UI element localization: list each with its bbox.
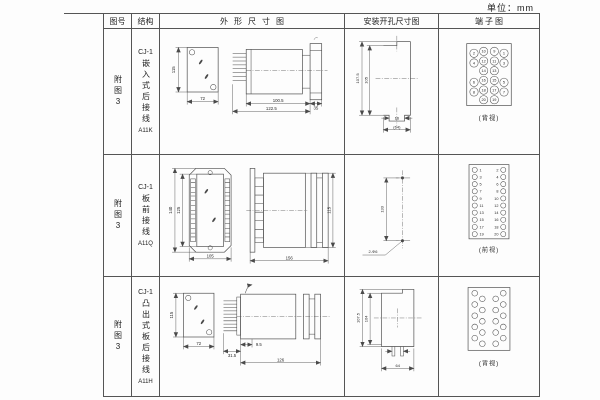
type-code: A11K — [138, 128, 152, 134]
terminal-number: 14 — [482, 68, 487, 73]
dim-side-d1: 31.5 — [227, 352, 236, 357]
side-view: 31.5 9.5 126 — [223, 284, 331, 365]
view-label: (背视) — [479, 359, 499, 367]
dim-front-width: 72 — [200, 96, 205, 101]
structure-label: 嵌入式后接线 — [142, 59, 150, 125]
terminal-diagram-a11h: (背视) — [439, 278, 539, 396]
screw-slot-icon — [204, 188, 209, 193]
row3-structure: CJ-1 凸出式板后接线 A11H — [132, 277, 160, 396]
terminal-number: 11 — [479, 203, 483, 207]
front-view: 140 125 105 — [168, 168, 231, 261]
dim-front-height: 115 — [169, 311, 174, 318]
dim-h-inner: 125 — [176, 206, 181, 214]
bottom-slots — [392, 346, 403, 356]
dim-side-d2: 9.5 — [255, 342, 262, 347]
terminal-number: 19 — [479, 232, 483, 236]
terminal-number: 18 — [494, 225, 498, 229]
terminal-number: 5 — [503, 79, 505, 84]
header-outline: 外形尺寸图 — [160, 14, 345, 29]
dim-v-inner: 104 — [363, 314, 368, 321]
terminal-number: 4 — [496, 175, 498, 179]
row2-outline-cell: 140 125 105 156 115 — [160, 155, 345, 277]
terminal-number: 11 — [492, 58, 496, 63]
row1-structure: CJ-1 嵌入式后接线 A11K — [132, 29, 160, 155]
row2-fig-no: 附图3 — [104, 155, 132, 277]
model-label: CJ-1 — [138, 184, 153, 191]
terminal-number: 12 — [482, 58, 486, 63]
terminal-diagram-a11q: 1 3 5 7 9 11 13 15 17 19 2 4 6 8 10 12 1… — [439, 157, 539, 275]
row3-terminal-cell: (背视) — [439, 277, 539, 396]
row3-fig-no: 附图3 — [104, 277, 132, 396]
row2-terminal-cell: 1 3 5 7 9 11 13 15 17 19 2 4 6 8 10 12 1… — [439, 155, 539, 277]
terminal-number: 8 — [473, 89, 475, 94]
dim-side-height: 115 — [326, 206, 331, 213]
fig-no-label: 附图3 — [114, 199, 122, 233]
type-code: A11H — [138, 379, 153, 385]
mount-hole-icon — [189, 49, 194, 54]
dim-v-inner: 105 — [363, 76, 368, 84]
terminal-number: 1 — [479, 168, 481, 172]
terminal-number: 1 — [503, 50, 505, 55]
side-view: 156 115 — [246, 168, 335, 263]
terminal-number: 6 — [473, 79, 475, 84]
dim-bottom-width: (64) — [393, 124, 401, 129]
terminal-pins-icon — [232, 53, 246, 80]
dim-side-d1: 100.5 — [272, 98, 283, 103]
terminal-strip-icon — [190, 182, 195, 236]
row1-install-cell: 107.5 105 16 (64) — [345, 29, 439, 155]
header-terminal: 端子图 — [439, 14, 539, 29]
dim-h-outer: 140 — [168, 206, 173, 214]
terminal-number: 13 — [479, 211, 483, 215]
terminal-number: 5 — [479, 182, 481, 186]
screw-slot-icon — [193, 304, 198, 309]
terminal-number: 10 — [494, 196, 498, 200]
screw-slot-icon — [200, 319, 205, 324]
dim-side-width: 156 — [285, 255, 293, 260]
terminal-number: 18 — [482, 87, 486, 92]
view-label: (背视) — [479, 113, 500, 122]
spec-table: 图号 结构 外形尺寸图 安装开孔尺寸图 端子图 附图3 CJ-1 嵌入式后接线 … — [103, 13, 540, 397]
terminal-circles — [472, 290, 506, 346]
dim-slot-width: 16 — [394, 115, 399, 120]
header-structure: 结构 — [132, 14, 160, 29]
dim-front-width: 72 — [196, 341, 201, 346]
structure-label: 板前接线 — [142, 194, 150, 238]
terminal-number: 9 — [493, 48, 495, 53]
header-fig-no: 图号 — [104, 14, 132, 29]
terminal-number: 16 — [482, 77, 486, 82]
fig-no-label: 附图3 — [114, 75, 122, 109]
terminal-circles: 1 3 5 7 9 11 13 15 17 19 2 4 6 8 10 12 1… — [472, 167, 506, 236]
row3-outline-cell: 115 72 31.5 9.5 126 — [160, 277, 345, 396]
structure-label: 凸出式板后接线 — [142, 299, 150, 376]
row1-fig-no: 附图3 — [104, 29, 132, 155]
terminal-number: 20 — [494, 232, 498, 236]
terminal-number: 8 — [496, 189, 498, 193]
model-label: CJ-1 — [138, 289, 153, 296]
dim-bottom-width: 64 — [395, 362, 400, 367]
front-view: 115 72 — [171, 47, 218, 104]
model-label: CJ-1 — [138, 49, 153, 56]
mount-hole-icon — [206, 329, 211, 334]
terminal-number: 6 — [496, 182, 498, 186]
install-drawing-a11k: 107.5 105 16 (64) — [346, 32, 438, 152]
dim-front-height: 115 — [171, 65, 176, 73]
type-code: A11Q — [138, 241, 153, 247]
row2-install-cell: 133 2-Φ6 — [345, 155, 439, 277]
spec-sheet-page: { "unit_label": "单位：mm", "header": { "fi… — [0, 0, 600, 400]
terminal-number: 4 — [473, 60, 476, 65]
terminal-number: 19 — [492, 97, 496, 102]
terminal-number: 17 — [492, 87, 496, 92]
terminal-number: 3 — [479, 175, 481, 179]
hole-spec-label: 2-Φ6 — [368, 249, 378, 254]
terminal-strip-icon — [224, 182, 229, 236]
outline-drawing-a11q: 140 125 105 156 115 — [161, 157, 344, 275]
mount-hole-icon — [210, 84, 215, 89]
mount-hole-icon — [185, 295, 190, 300]
fig-no-label: 附图3 — [114, 320, 122, 354]
header-install: 安装开孔尺寸图 — [345, 14, 439, 29]
terminal-number: 12 — [494, 203, 498, 207]
screw-slot-icon — [211, 217, 216, 222]
terminal-number: 7 — [503, 89, 505, 94]
terminal-diagram-a11k: 2 10 9 1 4 12 11 3 14 13 6 16 15 5 8 18 … — [439, 32, 539, 152]
front-view: 115 72 — [169, 293, 214, 349]
terminal-number: 7 — [479, 189, 481, 193]
terminal-number: 2 — [473, 50, 475, 55]
outline-drawing-a11k: 115 72 100.5 122.5 — [161, 32, 344, 152]
row2-structure: CJ-1 板前接线 A11Q — [132, 155, 160, 277]
terminal-number: 15 — [479, 218, 483, 222]
dim-side-d3: 35 — [313, 105, 318, 110]
terminal-number: 16 — [494, 218, 498, 222]
row1-outline-cell: 115 72 100.5 122.5 — [160, 29, 345, 155]
dim-side-d3: 126 — [277, 357, 285, 362]
dim-hole-pitch: 133 — [379, 205, 384, 212]
terminal-number: 13 — [492, 68, 496, 73]
install-drawing-a11q: 133 2-Φ6 — [346, 157, 438, 275]
dim-side-d2: 122.5 — [265, 105, 276, 110]
terminal-number: 17 — [479, 225, 483, 229]
terminal-number: 3 — [503, 60, 505, 65]
terminal-number: 2 — [496, 168, 498, 172]
view-label: (前视) — [479, 246, 499, 254]
terminal-number: 15 — [492, 77, 496, 82]
terminal-circles: 2 10 9 1 4 12 11 3 14 13 6 16 15 5 8 18 … — [470, 47, 508, 104]
side-view: 100.5 122.5 35 — [232, 37, 327, 114]
top-rule — [64, 13, 103, 14]
terminal-number: 10 — [482, 48, 486, 53]
lead-arrow-icon — [245, 284, 252, 293]
dim-v-outer: 107.5 — [355, 72, 360, 83]
clip-symbol-icon — [313, 37, 318, 39]
terminal-number: 14 — [494, 211, 498, 215]
dim-v-outer: 107.5 — [355, 312, 360, 323]
screw-slot-icon — [198, 59, 203, 65]
row1-terminal-cell: 2 10 9 1 4 12 11 3 14 13 6 16 15 5 8 18 … — [439, 29, 539, 155]
screw-slot-icon — [204, 73, 209, 79]
install-drawing-a11h: 107.5 104 64 — [346, 278, 438, 396]
dim-front-width: 105 — [206, 253, 214, 258]
row3-install-cell: 107.5 104 64 — [345, 277, 439, 396]
terminal-number: 9 — [479, 196, 481, 200]
outline-drawing-a11h: 115 72 31.5 9.5 126 — [161, 278, 344, 396]
terminal-number: 20 — [482, 97, 486, 102]
terminal-pins-icon — [223, 300, 236, 330]
